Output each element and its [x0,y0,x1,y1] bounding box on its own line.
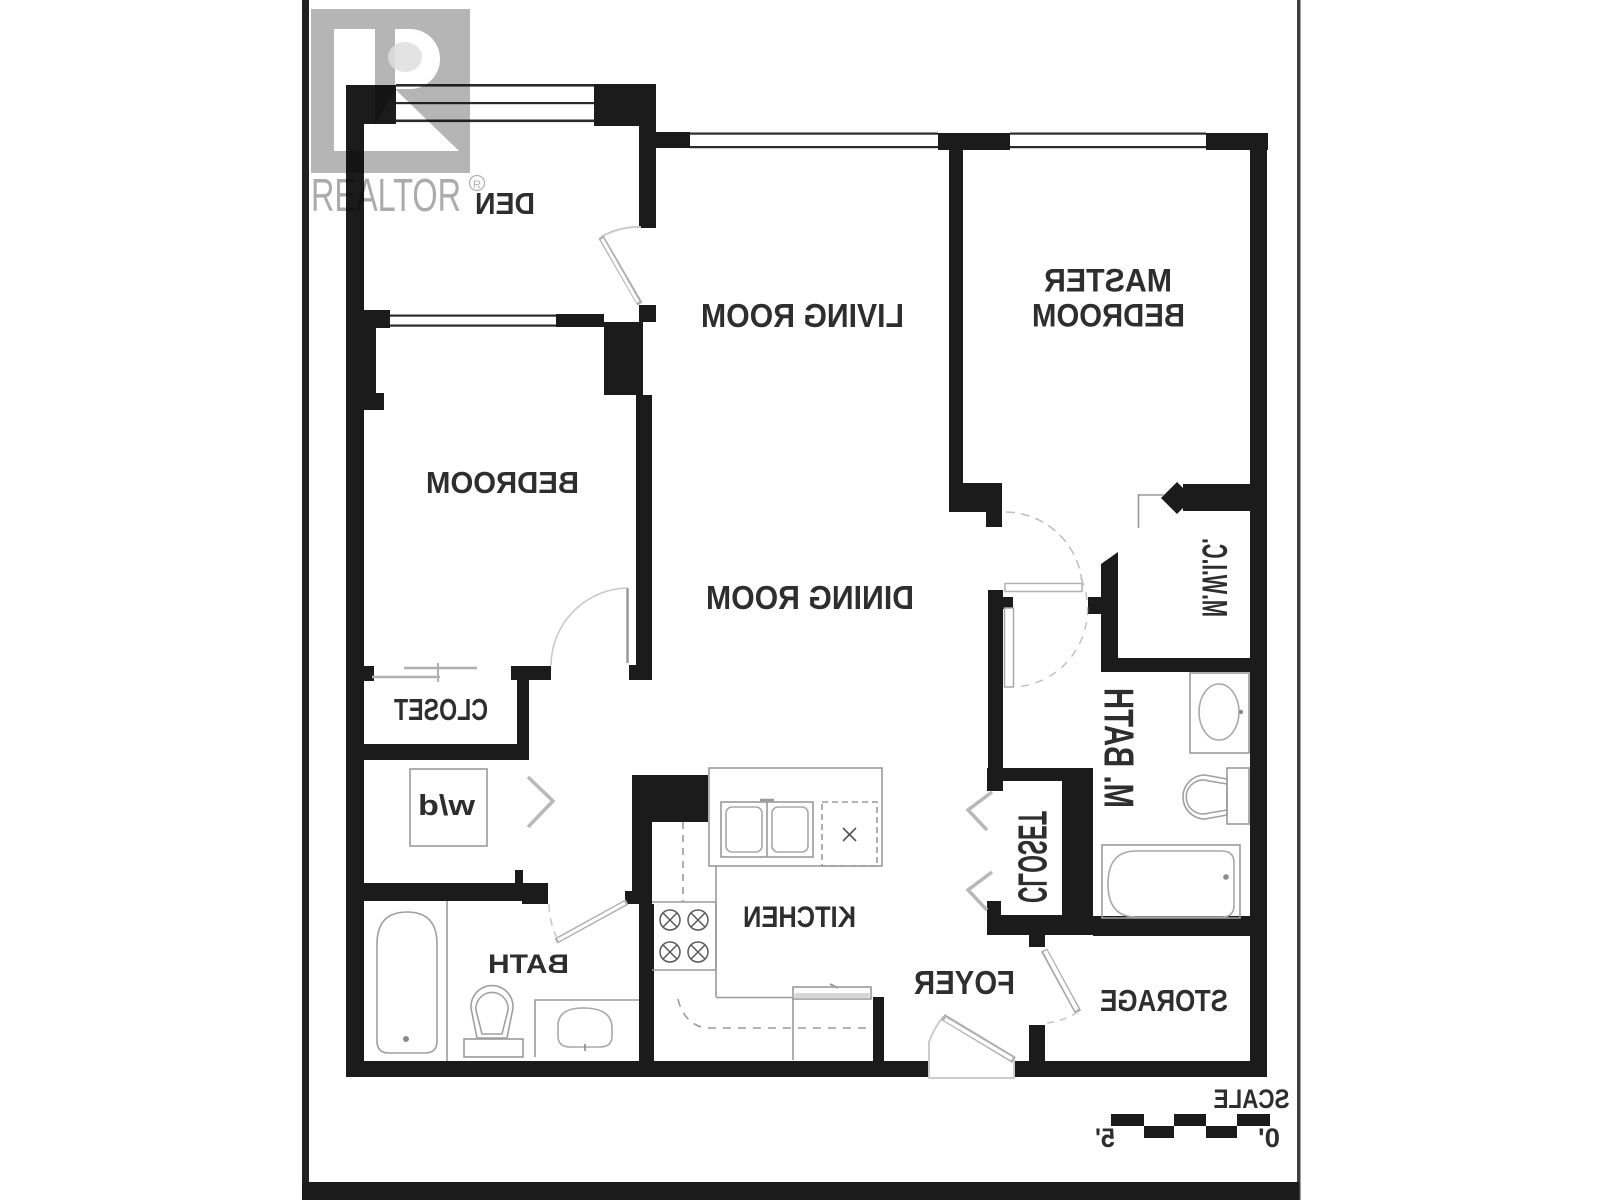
svg-text:DEN: DEN [475,186,535,221]
svg-text:MASTER: MASTER [1044,263,1172,299]
svg-text:CLOSET: CLOSET [1010,811,1056,903]
svg-text:BEDROOM: BEDROOM [1032,298,1185,334]
svg-text:M.W.I.C.: M.W.I.C. [1195,538,1234,617]
svg-text:BATH: BATH [488,949,569,979]
svg-text:DINING ROOM: DINING ROOM [706,579,914,616]
svg-text:w/d: w/d [418,790,476,822]
svg-text:BEDROOM: BEDROOM [426,465,579,500]
svg-text:REALTOR: REALTOR [311,169,461,221]
svg-text:5': 5' [1095,1123,1115,1153]
svg-text:0': 0' [1258,1123,1280,1153]
svg-text:STORAGE: STORAGE [1100,983,1228,1018]
svg-text:CLOSET: CLOSET [394,692,488,727]
svg-text:R: R [473,179,481,191]
svg-text:LIVING ROOM: LIVING ROOM [701,297,904,334]
svg-text:KITCHEN: KITCHEN [743,901,856,934]
svg-text:M. BATH: M. BATH [1096,688,1143,808]
svg-text:SCALE: SCALE [1214,1084,1290,1114]
svg-text:FOYER: FOYER [914,964,1015,1001]
